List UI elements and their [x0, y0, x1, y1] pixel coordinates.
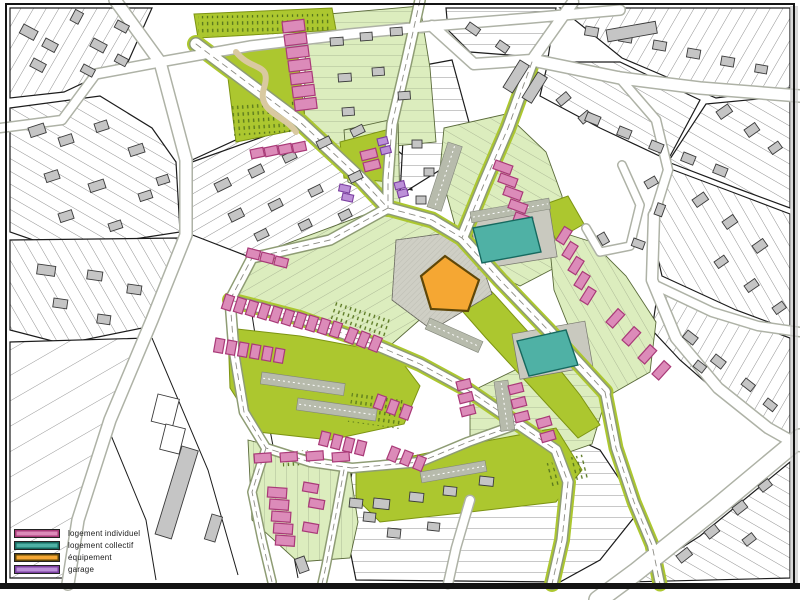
legend-item-equipement: équipement [14, 553, 140, 562]
legend-label: logement individuel [68, 529, 140, 538]
legend-item-garage: garage [14, 565, 140, 574]
legend-swatch-1 [14, 541, 60, 550]
site-plan-map: logement individuel logement collectif é… [0, 0, 800, 600]
legend-item-logement-individuel: logement individuel [14, 529, 140, 538]
legend-swatch-3 [14, 565, 60, 574]
legend-label: équipement [68, 553, 112, 562]
legend-label: logement collectif [68, 541, 133, 550]
legend-swatch-0 [14, 529, 60, 538]
map-canvas [0, 0, 800, 600]
legend: logement individuel logement collectif é… [14, 529, 140, 574]
legend-swatch-2 [14, 553, 60, 562]
legend-label: garage [68, 565, 94, 574]
legend-item-logement-collectif: logement collectif [14, 541, 140, 550]
